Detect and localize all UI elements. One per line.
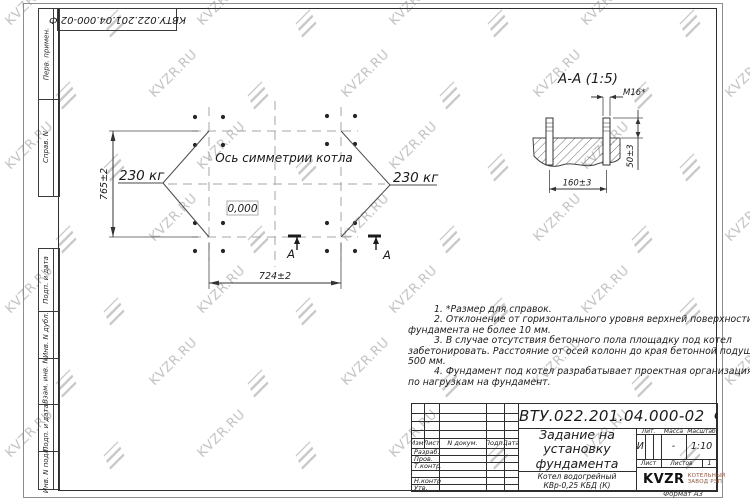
plan-view: 765±2 724±2 А А Ось симметрии котла 0,00…: [85, 95, 475, 295]
row-empty: [412, 470, 441, 477]
note-line: забетонировать. Расстояние от осей колон…: [408, 347, 738, 357]
drawing-title: Задание на установку фундамента: [518, 428, 636, 471]
grid-line: [486, 404, 487, 491]
grid-line: [636, 459, 717, 460]
grid-line: [412, 438, 518, 439]
symmetry-axis-label: Ось симметрии котла: [215, 151, 352, 165]
section-view-a-a: А-А (1:5) М16* 50±3 160±3: [520, 62, 660, 197]
strip-label: Подп. и дата: [42, 404, 50, 452]
elevation-value: 0,000: [227, 203, 257, 215]
grid-line: [412, 430, 518, 431]
kvzr-logo-icon: [637, 474, 642, 484]
strip-cell-perv-primen: Перв. примен.: [39, 9, 53, 99]
grid-line: [412, 470, 518, 471]
margin-strip-bottom: Подп. и дата Инв. N дубл. Взам. инв. N П…: [38, 248, 60, 490]
dimension-m16: М16*: [591, 88, 645, 116]
lit-value: И: [636, 434, 645, 459]
strip-cell-inv-dubl: Инв. N дубл.: [39, 311, 53, 358]
doc-number: КВТУ.022.201.04.000-02 Ф: [518, 404, 717, 428]
strip-cell-sprav-n: Справ. N: [39, 99, 53, 194]
brand-name: KVZR: [643, 472, 685, 487]
grid-line: [686, 434, 687, 459]
product-line: Котел водогрейный: [538, 472, 617, 481]
brand-subtitle: КОТЕЛЬНЫЙ ЗАВОД РЭП: [688, 473, 726, 485]
section-letter-right: А: [382, 248, 391, 262]
reversed-docnumber-text: КВТУ.022.201.04.000-02 Ф: [49, 14, 186, 25]
section-letter-left: А: [286, 247, 295, 261]
reversed-docnumber-stamp: КВТУ.022.201.04.000-02 Ф: [57, 8, 177, 31]
section-cut-marks: А А: [286, 236, 391, 262]
dim-50-label: 50±3: [626, 144, 636, 167]
grid-line: [412, 413, 518, 414]
scale-value: 1:10: [686, 434, 717, 459]
col-izm: Изм.: [412, 438, 424, 448]
row-nkontr: Н.контр.: [412, 477, 441, 484]
grid-line: [518, 428, 717, 429]
grid-line: [439, 404, 440, 491]
grid-line: [412, 484, 518, 485]
format-label: Формат А3: [648, 490, 718, 498]
grid-line: [412, 462, 518, 463]
brand-logo-row: KVZR КОТЕЛЬНЫЙ ЗАВОД РЭП: [636, 467, 717, 491]
watermark-text: KVZR.RU: [723, 47, 750, 101]
load-label-left: 230 кг: [119, 168, 165, 184]
grid-line: [424, 404, 425, 448]
drawing-sheet: KVZR.RUKVZR.RUKVZR.RUKVZR.RUKVZR.RUKVZR.…: [0, 0, 750, 500]
strip-label: Справ. N: [42, 130, 50, 162]
col-podp: Подп.: [486, 438, 504, 448]
dim-724-label: 724±2: [259, 271, 291, 282]
dim-160-label: 160±3: [563, 179, 592, 189]
title-block: КВТУ.022.201.04.000-02 Ф Задание на уста…: [411, 403, 718, 492]
grid-line: [412, 455, 518, 456]
watermark-text: KVZR.RU: [723, 191, 750, 245]
sheets-label: Листов: [661, 459, 702, 467]
strip-divider: [53, 9, 54, 196]
note-line: по нагрузкам на фундамент.: [408, 378, 738, 388]
grid-line: [653, 434, 654, 459]
brand-sub-line: ЗАВОД РЭП: [688, 479, 726, 485]
load-label-right: 230 кг: [393, 170, 439, 186]
row-razrab: Разраб.: [412, 448, 441, 455]
grid-line: [636, 434, 717, 435]
title-line: фундамента: [536, 457, 619, 471]
margin-strip-top: Перв. примен. Справ. N: [38, 8, 60, 197]
title-line: Задание на: [539, 428, 615, 442]
row-tkontr: Т.контр.: [412, 462, 441, 470]
grid-line: [518, 471, 636, 472]
strip-cell-inv-podl: Инв. N подл.: [39, 451, 53, 489]
strip-divider: [53, 249, 54, 489]
grid-line: [661, 434, 662, 467]
grid-line: [518, 404, 519, 491]
row-utv: Утв.: [412, 484, 441, 491]
section-title: А-А (1:5): [557, 71, 618, 87]
grid-line: [702, 459, 703, 467]
strip-label: Инв. N подл.: [42, 447, 50, 493]
technical-notes: 1. *Размер для справок. 2. Отклонение от…: [408, 305, 738, 388]
elevation-mark: 0,000: [227, 201, 258, 215]
col-data: Дата: [504, 438, 518, 448]
product-name: Котел водогрейный КВр-0,25 КБД (К): [518, 471, 636, 491]
grid-line: [645, 434, 646, 459]
strip-cell-podp-data-2: Подп. и дата: [39, 404, 53, 451]
product-line: КВр-0,25 КБД (К): [544, 481, 611, 490]
thread-label: М16*: [623, 88, 645, 98]
strip-label: Инв. N дубл.: [42, 312, 50, 358]
strip-cell-podp-data-1: Подп. и дата: [39, 249, 53, 311]
centerlines: [168, 101, 385, 267]
strip-label: Подп. и дата: [42, 256, 50, 304]
dimension-160: 160±3: [550, 170, 607, 193]
strip-label: Перв. примен.: [42, 28, 50, 81]
title-line: установку: [543, 442, 610, 457]
grid-line: [412, 477, 518, 478]
col-list: Лист: [424, 438, 439, 448]
row-prov: Пров.: [412, 455, 441, 462]
grid-line: [504, 404, 505, 491]
col-ndokum: N докум.: [439, 438, 486, 448]
dim-765-label: 765±2: [99, 168, 110, 200]
grid-line: [412, 448, 518, 449]
sheets-value: 1: [702, 459, 717, 467]
grid-line: [412, 421, 518, 422]
strip-cell-vzam-inv: Взам. инв. N: [39, 358, 53, 404]
strip-label: Взам. инв. N: [42, 358, 50, 403]
sheet-label: Лист: [636, 459, 661, 467]
mass-value: -: [661, 434, 686, 459]
